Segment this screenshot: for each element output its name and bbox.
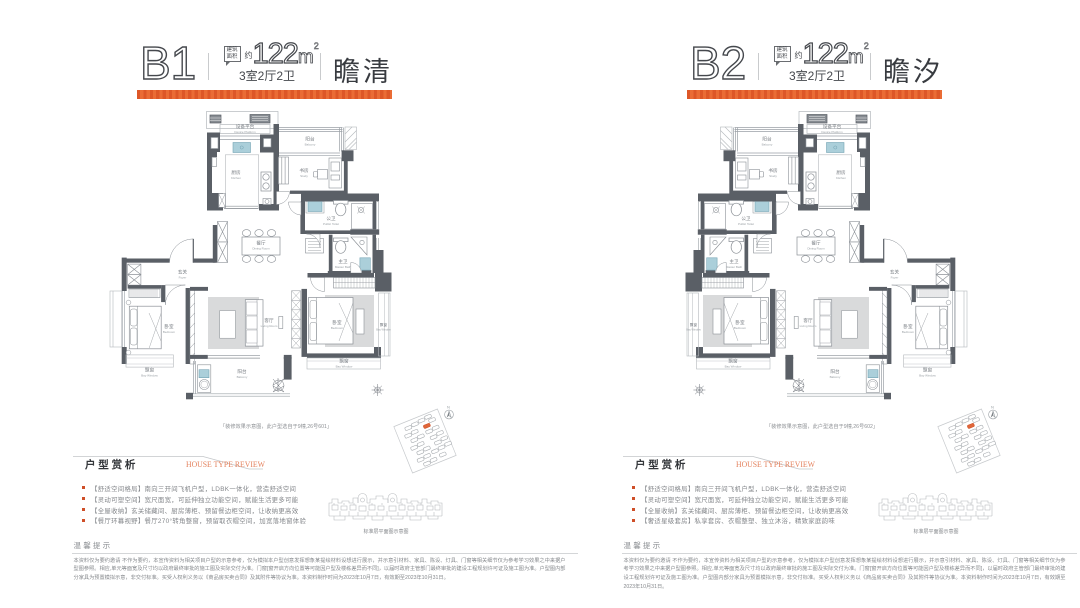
svg-text:Kitchen: Kitchen [836, 176, 846, 180]
svg-text:Foyer: Foyer [179, 276, 187, 280]
svg-text:Bedroom: Bedroom [163, 330, 176, 334]
svg-text:Foyer: Foyer [891, 276, 899, 280]
svg-text:Bedroom: Bedroom [734, 326, 747, 330]
svg-text:N: N [447, 405, 450, 410]
svg-text:主卫: 主卫 [729, 258, 739, 264]
svg-text:厨房: 厨房 [836, 169, 846, 176]
svg-text:卧室: 卧室 [164, 323, 174, 330]
svg-text:Dining Room: Dining Room [252, 247, 270, 251]
svg-text:Balcony: Balcony [305, 143, 316, 147]
svg-text:阳台: 阳台 [830, 368, 840, 375]
svg-text:Bay Window: Bay Window [725, 365, 743, 369]
svg-text:Kitchen: Kitchen [231, 176, 241, 180]
svg-text:Bay Window: Bay Window [919, 374, 937, 378]
svg-text:Bedroom: Bedroom [902, 330, 915, 334]
svg-text:Bay Window: Bay Window [336, 365, 354, 369]
svg-text:Balcony: Balcony [237, 375, 248, 379]
svg-text:Study: Study [300, 174, 308, 178]
svg-text:客厅: 客厅 [803, 317, 813, 324]
svg-text:设备平台: 设备平台 [236, 123, 255, 130]
svg-text:阳台: 阳台 [237, 368, 247, 375]
svg-text:卧室: 卧室 [903, 323, 913, 330]
svg-text:飘窗: 飘窗 [728, 358, 738, 365]
svg-text:书房: 书房 [768, 167, 778, 174]
svg-text:Bay Window: Bay Window [686, 328, 701, 332]
svg-text:阳台: 阳台 [762, 136, 772, 143]
svg-text:飘窗: 飘窗 [923, 367, 933, 374]
svg-text:Bay Window: Bay Window [376, 328, 391, 332]
svg-text:公卫: 公卫 [741, 216, 751, 221]
svg-text:飘窗: 飘窗 [339, 358, 349, 365]
svg-text:Living Room: Living Room [261, 324, 278, 328]
svg-text:Public Toilet: Public Toilet [323, 222, 339, 226]
svg-text:Dining Room: Dining Room [807, 247, 825, 251]
svg-text:Public Toilet: Public Toilet [738, 222, 754, 226]
svg-text:餐厅: 餐厅 [256, 240, 266, 247]
svg-text:卧室: 卧室 [735, 319, 745, 326]
svg-text:书房: 书房 [299, 167, 309, 174]
svg-text:Living Room: Living Room [800, 324, 817, 328]
svg-text:Bedroom: Bedroom [331, 326, 344, 330]
svg-text:Master Bath: Master Bath [335, 265, 352, 269]
svg-text:Device Platform: Device Platform [234, 130, 256, 134]
svg-text:Study: Study [769, 174, 777, 178]
svg-text:玄关: 玄关 [890, 269, 900, 276]
svg-text:设备平台: 设备平台 [823, 123, 842, 130]
svg-text:客厅: 客厅 [264, 317, 274, 324]
svg-text:Bay Window: Bay Window [141, 374, 159, 378]
svg-text:公卫: 公卫 [326, 216, 336, 221]
svg-text:飘窗: 飘窗 [380, 322, 388, 327]
svg-text:厨房: 厨房 [231, 169, 241, 176]
svg-text:N: N [991, 405, 994, 410]
svg-text:卧室: 卧室 [332, 319, 342, 326]
svg-text:Master Bath: Master Bath [726, 265, 743, 269]
svg-text:Balcony: Balcony [830, 375, 841, 379]
svg-text:阳台: 阳台 [305, 136, 315, 143]
svg-text:飘窗: 飘窗 [690, 322, 698, 327]
svg-text:主卫: 主卫 [338, 258, 348, 264]
svg-text:飘窗: 飘窗 [145, 367, 155, 374]
svg-text:餐厅: 餐厅 [811, 240, 821, 247]
svg-text:玄关: 玄关 [178, 269, 188, 276]
svg-text:Balcony: Balcony [762, 143, 773, 147]
svg-text:Device Platform: Device Platform [821, 130, 843, 134]
